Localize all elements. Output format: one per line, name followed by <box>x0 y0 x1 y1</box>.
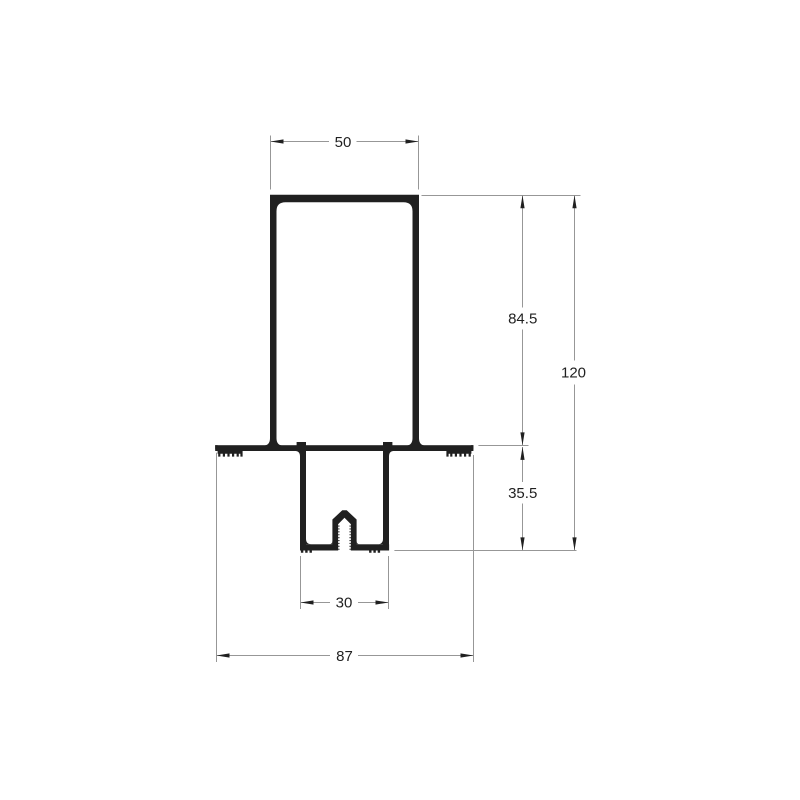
svg-text:30: 30 <box>336 595 353 612</box>
svg-text:84.5: 84.5 <box>508 311 537 328</box>
svg-text:120: 120 <box>561 365 586 382</box>
svg-text:87: 87 <box>336 648 353 665</box>
svg-text:35.5: 35.5 <box>508 485 537 502</box>
svg-text:50: 50 <box>335 134 352 151</box>
